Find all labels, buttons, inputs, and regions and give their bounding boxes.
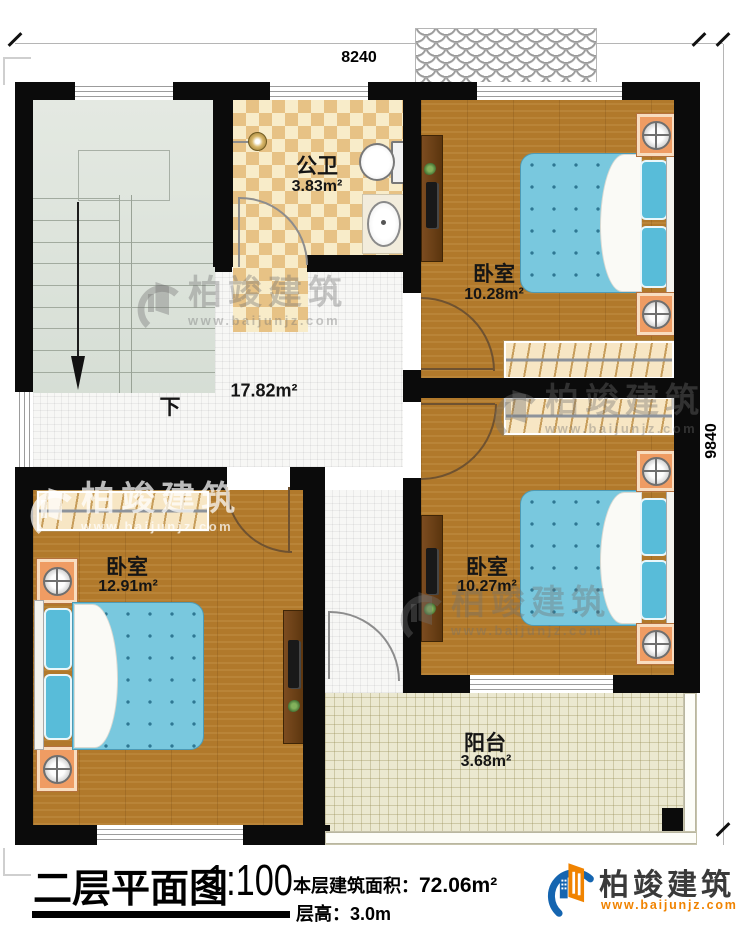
stair-landing (78, 150, 170, 201)
room-bedroom-left-area: 12.91m² (98, 578, 158, 596)
shower-icon (248, 132, 267, 151)
floor-area-row: 本层建筑面积：72.06m² (293, 872, 497, 898)
wall (403, 675, 470, 693)
down-arrow-icon (71, 356, 85, 390)
wardrobe (503, 396, 675, 436)
room-bedroom-mid-right-name: 卧室 (466, 551, 508, 581)
room-bathroom-area: 3.83m² (292, 178, 343, 196)
roof-shingles (415, 28, 597, 84)
window (75, 82, 173, 100)
stair-rail (119, 195, 132, 393)
sink-drain-icon (381, 220, 386, 225)
wall (403, 378, 674, 398)
wall (15, 82, 33, 392)
monitor-icon (426, 182, 437, 228)
wall (290, 467, 325, 490)
nightstand (636, 292, 676, 336)
floor-height-row: 层高：3.0m (296, 900, 391, 926)
lamp-icon (642, 300, 671, 329)
bed-pillow (640, 226, 668, 288)
wall (303, 490, 325, 825)
stair-step (33, 198, 119, 199)
lamp-icon (642, 457, 671, 486)
bed-pillow (640, 560, 668, 620)
wall (243, 825, 330, 845)
window (270, 82, 368, 100)
monitor-icon (426, 548, 437, 594)
plan-scale: 1:100 (207, 856, 293, 906)
brand-logo-icon (545, 858, 595, 920)
bed-headboard (34, 600, 44, 750)
window (97, 825, 243, 845)
area-label: 本层建筑面积： (293, 876, 419, 896)
dimension-tick-icon (692, 32, 707, 47)
stair-step (33, 220, 119, 221)
monitor-icon (288, 640, 299, 688)
window (15, 392, 33, 467)
dimension-tick-icon (8, 32, 23, 47)
dimension-right-line (723, 44, 724, 845)
lamp-icon (642, 630, 671, 659)
bed-pillow (640, 498, 668, 556)
room-balcony-area: 3.68m² (461, 753, 512, 771)
wall (215, 255, 232, 272)
lamp-icon (642, 121, 671, 150)
lamp-icon (43, 567, 72, 596)
room-bedroom-left-name: 卧室 (106, 551, 148, 581)
window (477, 82, 622, 100)
dimension-right-label: 9840 (703, 423, 721, 459)
room-bedroom-top-right-area: 10.28m² (464, 286, 524, 304)
room-bedroom-mid-right-area: 10.27m² (457, 578, 517, 596)
lamp-icon (43, 755, 72, 784)
floor-plan: 8240 9840 (0, 0, 750, 931)
corner-mark (3, 57, 31, 85)
room-bathroom-name: 公卫 (296, 150, 338, 180)
nightstand (636, 450, 676, 492)
dimension-top-line (15, 43, 723, 44)
wall (15, 467, 33, 845)
wall (403, 478, 421, 675)
hall-floor (33, 393, 233, 467)
plan-title: 二层平面图 (33, 858, 228, 914)
floor-height-label: 层高： (296, 904, 350, 924)
bed-pillow (44, 674, 72, 740)
floor-height-value: 3.0m (350, 904, 391, 924)
wardrobe (503, 340, 675, 380)
wall (307, 255, 421, 272)
stair-direction-line (77, 202, 79, 360)
wall (674, 82, 700, 693)
nightstand (636, 623, 676, 665)
toilet-icon (359, 143, 395, 181)
bed-duvet (600, 154, 642, 292)
nightstand (36, 746, 78, 792)
bed-pillow (640, 160, 668, 220)
wall (613, 675, 674, 693)
brand-website: www.baijunjz.com (601, 898, 738, 912)
nightstand (636, 113, 676, 157)
dimension-top-label: 8240 (341, 49, 377, 67)
hall-area: 17.82m² (230, 381, 297, 402)
room-bedroom-top-right-name: 卧室 (473, 258, 515, 288)
wall (368, 82, 477, 100)
bathroom-threshold-floor (233, 255, 308, 332)
wall (33, 467, 227, 490)
title-underline (32, 911, 290, 918)
window (470, 675, 613, 693)
nightstand (36, 558, 78, 604)
balcony-railing (683, 693, 697, 835)
area-value: 72.06m² (419, 874, 497, 897)
bed-pillow (44, 608, 72, 670)
stairs-down-label: 下 (160, 391, 181, 421)
wardrobe (36, 490, 210, 532)
wall (213, 82, 233, 267)
wall (15, 825, 97, 845)
bed-duvet (600, 492, 642, 624)
corner-mark (3, 848, 31, 876)
balcony-railing (325, 831, 697, 845)
